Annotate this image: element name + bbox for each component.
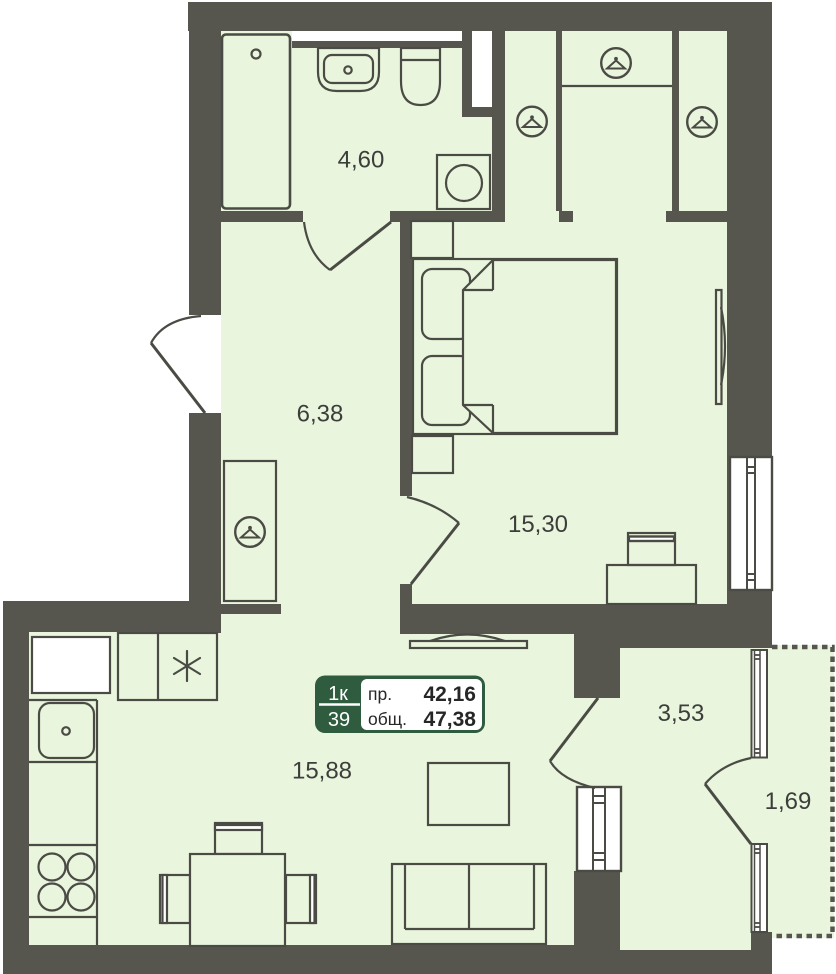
svg-text:39: 39 — [328, 709, 350, 731]
svg-text:4,60: 4,60 — [338, 147, 385, 174]
svg-text:пр.: пр. — [368, 684, 392, 704]
svg-text:1,69: 1,69 — [765, 788, 812, 815]
svg-text:47,38: 47,38 — [423, 708, 476, 731]
svg-text:15,30: 15,30 — [508, 511, 568, 538]
svg-text:1к: 1к — [328, 683, 348, 705]
svg-text:общ.: общ. — [368, 709, 407, 729]
svg-text:15,88: 15,88 — [292, 758, 352, 785]
svg-text:6,38: 6,38 — [297, 401, 344, 428]
svg-text:42,16: 42,16 — [423, 683, 476, 706]
svg-text:3,53: 3,53 — [658, 700, 705, 727]
